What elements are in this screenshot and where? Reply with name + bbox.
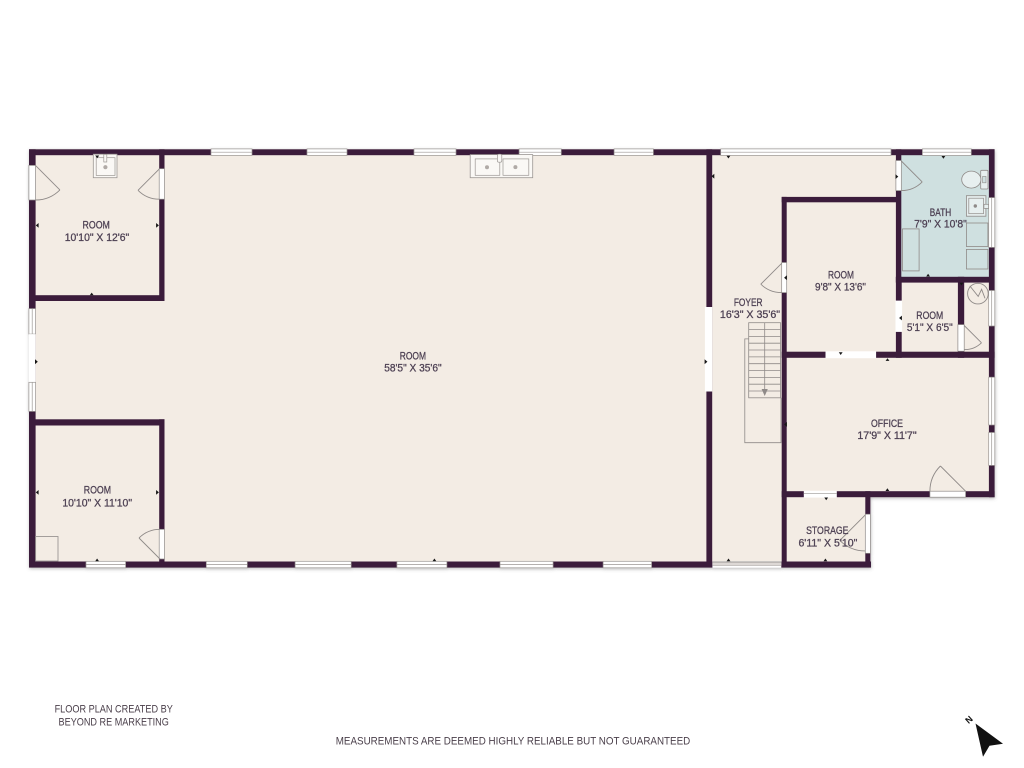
svg-text:6'11" X 5'10": 6'11" X 5'10" [798, 538, 857, 550]
svg-text:STORAGE: STORAGE [806, 525, 848, 537]
svg-text:MEASUREMENTS ARE DEEMED HIGHLY: MEASUREMENTS ARE DEEMED HIGHLY RELIABLE … [336, 736, 691, 748]
svg-text:7'9" X 10'8": 7'9" X 10'8" [914, 219, 967, 231]
svg-text:17'9" X 11'7": 17'9" X 11'7" [857, 430, 916, 442]
svg-text:10'10" X 12'6": 10'10" X 12'6" [65, 232, 130, 244]
svg-text:9'8" X 13'6": 9'8" X 13'6" [815, 281, 866, 293]
svg-text:ROOM: ROOM [916, 310, 943, 322]
svg-text:ROOM: ROOM [84, 485, 111, 497]
svg-text:BATH: BATH [930, 207, 951, 219]
svg-text:FLOOR PLAN CREATED BY: FLOOR PLAN CREATED BY [55, 704, 174, 716]
svg-text:BEYOND RE MARKETING: BEYOND RE MARKETING [59, 716, 169, 728]
svg-text:OFFICE: OFFICE [871, 418, 903, 430]
svg-text:ROOM: ROOM [400, 351, 426, 363]
svg-text:5'1" X 6'5": 5'1" X 6'5" [907, 322, 953, 334]
svg-text:58'5" X 35'6": 58'5" X 35'6" [384, 363, 441, 375]
svg-text:ROOM: ROOM [828, 270, 854, 282]
svg-text:FOYER: FOYER [734, 297, 763, 309]
svg-text:ROOM: ROOM [83, 219, 110, 231]
svg-text:16'3" X 35'6": 16'3" X 35'6" [720, 309, 780, 321]
svg-text:10'10" X 11'10": 10'10" X 11'10" [62, 497, 132, 509]
